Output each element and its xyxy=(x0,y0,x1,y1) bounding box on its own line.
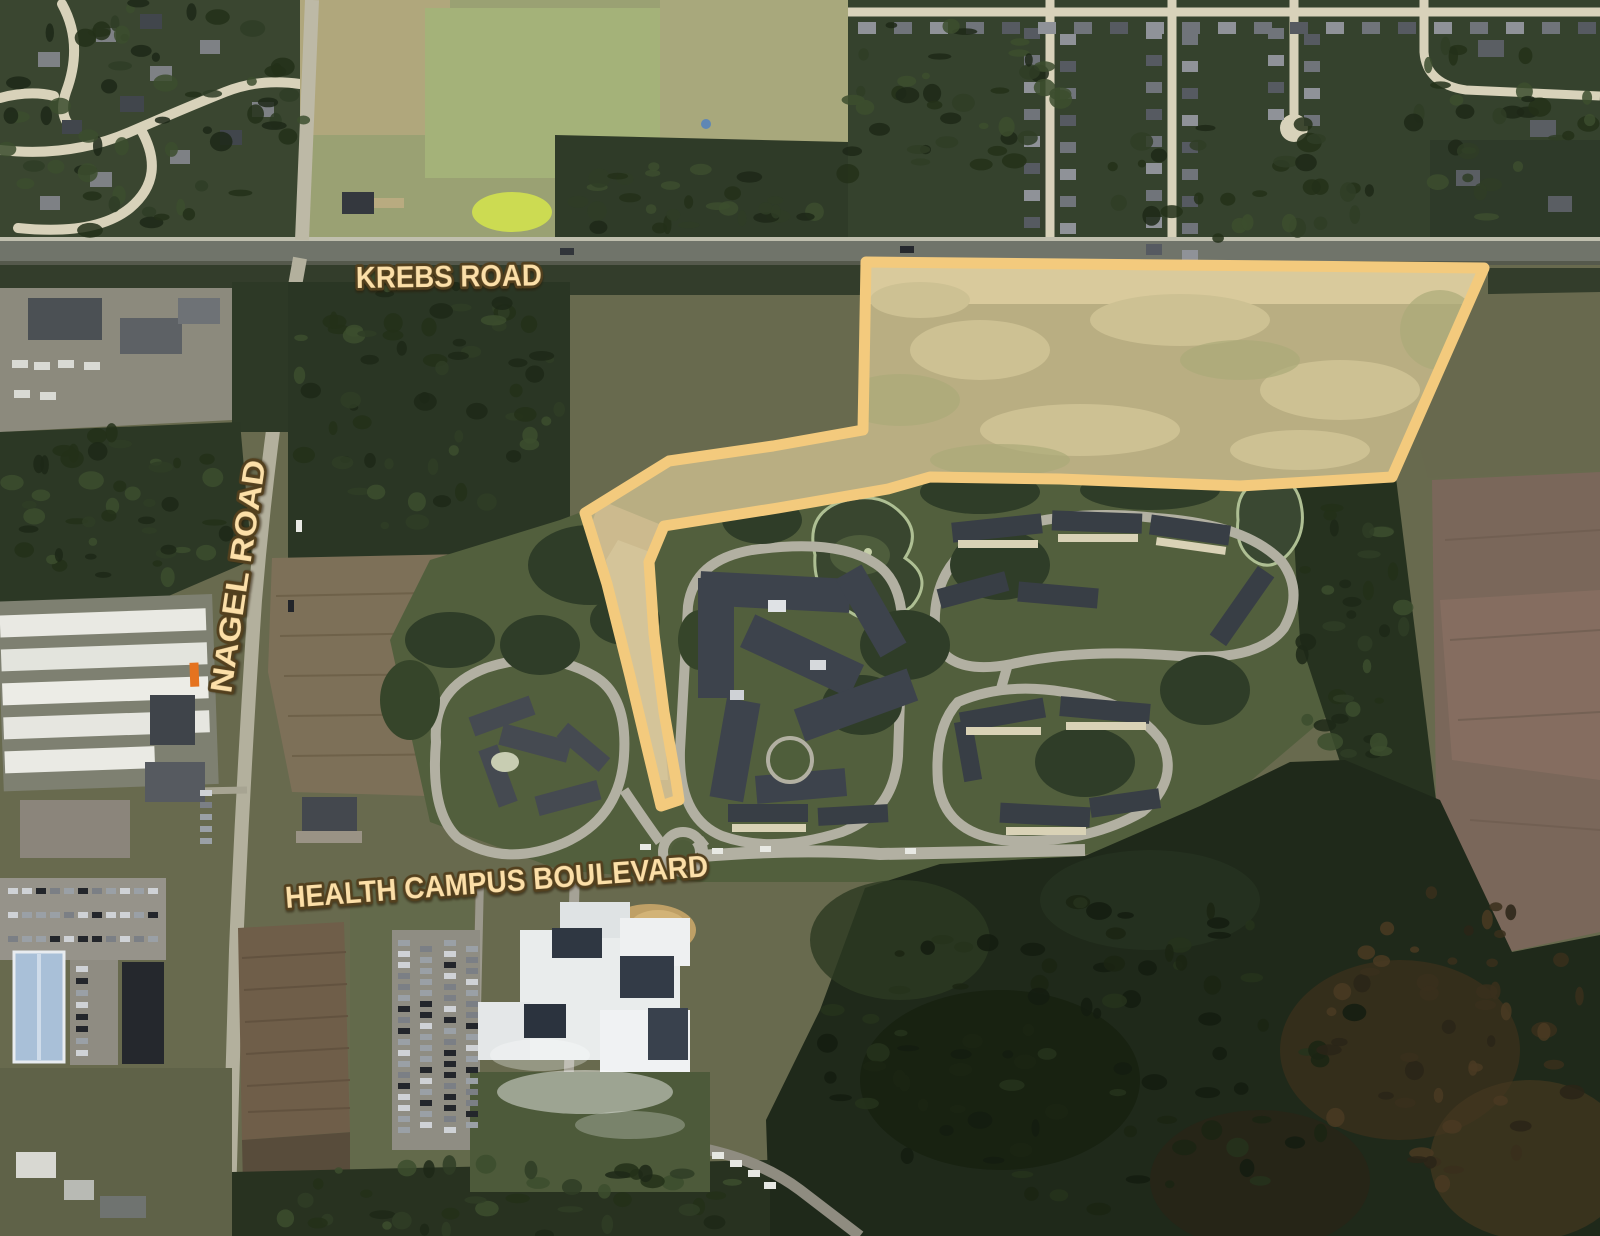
barns-west xyxy=(0,594,219,791)
cloud-wisp xyxy=(497,1070,673,1114)
subdivision-northeast xyxy=(848,0,1600,246)
orange-marker xyxy=(189,663,199,687)
krebs-road-label: KREBS ROAD xyxy=(356,257,542,295)
aerial-map: KREBS ROAD NAGEL ROAD HEALTH CAMPUS BOUL… xyxy=(0,0,1600,1236)
industrial-yard xyxy=(0,282,302,432)
satellite-canvas: KREBS ROAD NAGEL ROAD HEALTH CAMPUS BOUL… xyxy=(0,0,1600,1236)
